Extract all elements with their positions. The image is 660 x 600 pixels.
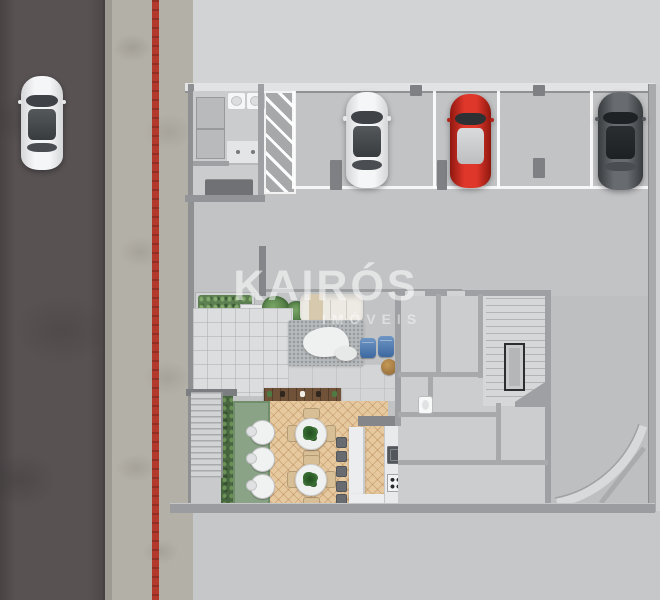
- table-plant: [303, 426, 317, 440]
- toilet-fixture: [227, 92, 246, 110]
- lobby-tile-floor: [193, 308, 293, 396]
- decor-plant: [267, 391, 272, 397]
- interior-wall: [193, 161, 229, 166]
- sofa-seam: [346, 300, 347, 319]
- bar-stool: [336, 451, 347, 462]
- parking-stripe: [292, 91, 295, 188]
- bar-stool: [336, 466, 347, 477]
- decor-plant: [332, 391, 337, 397]
- car-rear-glass: [605, 162, 637, 172]
- parked-car-red: [450, 94, 491, 188]
- sofa-seam: [330, 300, 331, 319]
- car-roof: [28, 109, 56, 140]
- garage-column: [533, 85, 545, 96]
- car-rear-glass: [27, 143, 56, 152]
- garden-table: [250, 420, 275, 445]
- garage-column: [533, 158, 545, 178]
- parked-car-white: [346, 92, 388, 188]
- interior-wall: [258, 84, 264, 200]
- room-wall: [398, 372, 483, 377]
- blue-armchair: [360, 338, 376, 358]
- door-opening: [405, 291, 425, 296]
- street-car-white: [21, 76, 63, 170]
- car-windshield: [603, 112, 637, 125]
- car-windshield: [26, 95, 58, 107]
- car-mirror-right: [387, 116, 391, 121]
- room-wall: [436, 294, 441, 376]
- parking-stripe: [590, 91, 593, 188]
- room-wall: [496, 403, 501, 465]
- garage-column: [437, 160, 447, 190]
- plaza-south: [193, 511, 660, 600]
- decor-box: [300, 391, 305, 397]
- parking-stripe: [497, 91, 500, 188]
- lobby-sofa: [300, 294, 363, 322]
- plaza-north: [193, 0, 660, 85]
- car-roof: [457, 128, 484, 164]
- unit-wall: [395, 290, 401, 426]
- elevator-core: [504, 343, 525, 391]
- site-plan-render: KAIRÓS IMÓVEIS: [0, 0, 660, 600]
- toilet-fixture: [418, 396, 433, 414]
- decor-bottle: [280, 391, 285, 397]
- decor-bottle: [316, 391, 321, 397]
- car-roof: [606, 126, 636, 158]
- garage-column: [330, 160, 342, 190]
- bar-counter: [349, 427, 365, 499]
- car-mirror-right: [62, 100, 66, 105]
- ramp-curve-graphic: [551, 408, 648, 503]
- stair-landing: [191, 478, 221, 506]
- garden-table: [250, 447, 275, 472]
- parking-stripe: [433, 91, 436, 188]
- garage-column: [410, 85, 422, 96]
- car-windshield: [455, 113, 486, 125]
- car-mirror-left: [343, 116, 347, 121]
- room-wall: [398, 412, 501, 417]
- building-wall-south: [170, 503, 655, 513]
- car-roof: [353, 126, 381, 158]
- interior-wall: [259, 246, 266, 296]
- car-rear-glass: [352, 160, 381, 170]
- parked-car-dark: [598, 92, 643, 190]
- exterior-stairs: [191, 392, 223, 478]
- room-wall: [398, 460, 548, 465]
- wood-sideboard: [264, 388, 341, 401]
- bar-stool: [336, 481, 347, 492]
- room-wall: [478, 294, 483, 378]
- interior-wall: [185, 195, 265, 202]
- blue-armchair: [378, 336, 394, 357]
- lounge-seating: [303, 327, 349, 357]
- door-opening: [447, 291, 465, 296]
- garden-table: [250, 474, 275, 499]
- tactile-red-line: [152, 0, 159, 600]
- car-windshield: [351, 111, 383, 123]
- sofa-throw: [309, 294, 323, 322]
- bar-stool: [336, 437, 347, 448]
- building-wall-east: [648, 84, 656, 512]
- table-plant: [303, 472, 317, 486]
- car-mirror-right: [490, 118, 494, 123]
- storage-closet: [196, 97, 225, 159]
